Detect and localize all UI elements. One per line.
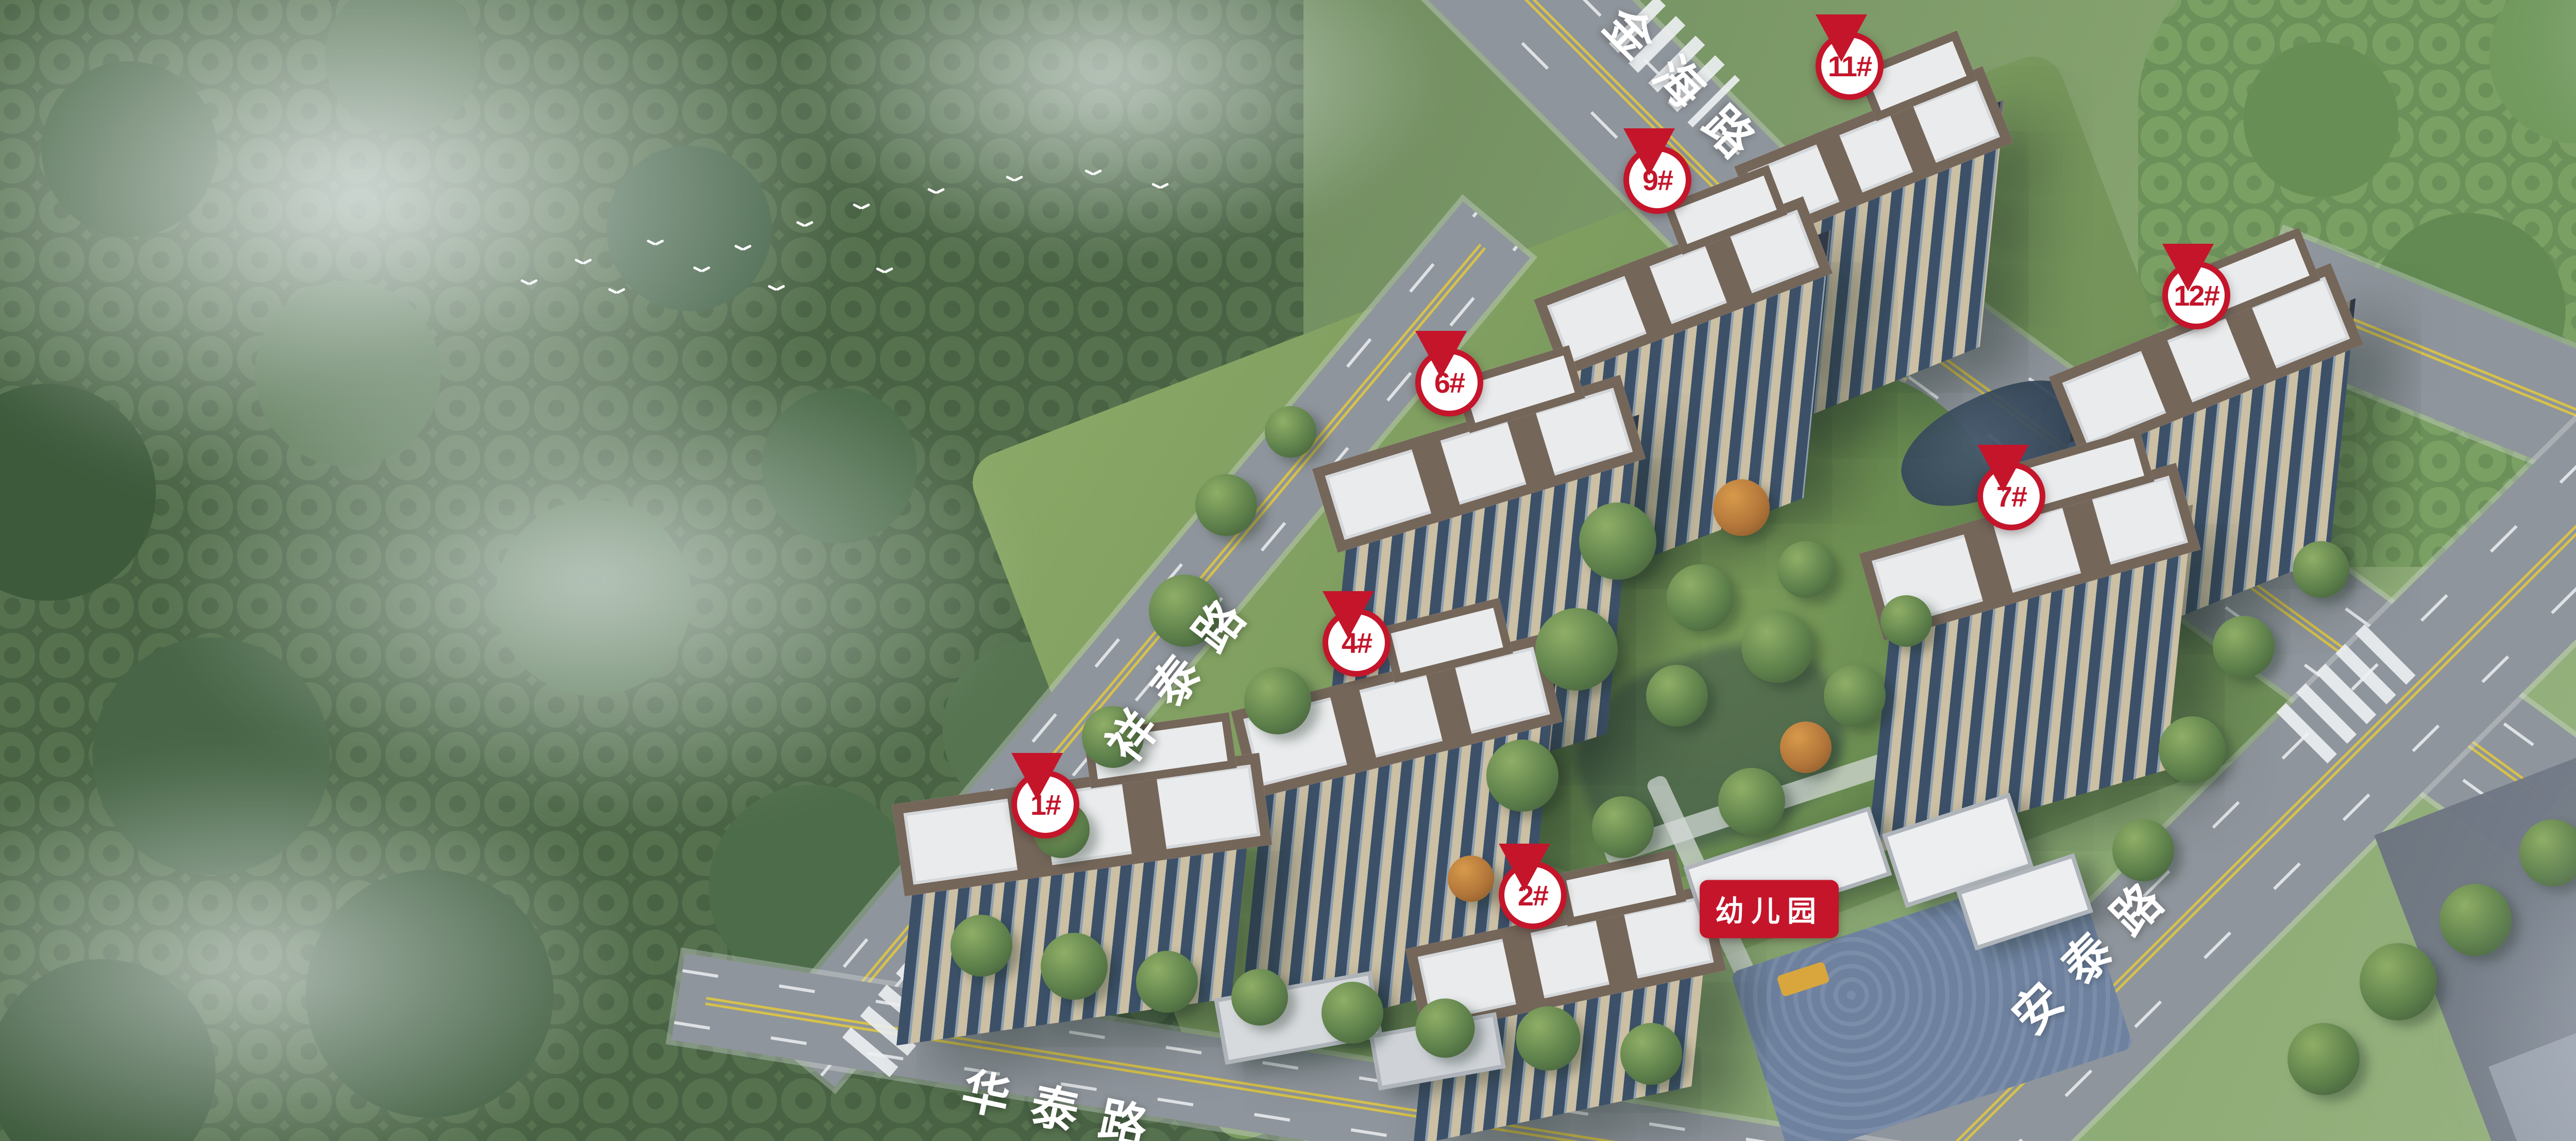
autumn-tree	[1713, 479, 1770, 536]
pin-tail-icon	[1623, 128, 1675, 176]
roof-divider	[1621, 257, 1675, 343]
tree	[1592, 796, 1654, 858]
tree	[2439, 884, 2512, 956]
tree	[1195, 474, 1257, 536]
bird-icon	[520, 281, 538, 288]
tree	[1667, 564, 1734, 631]
tree	[1620, 1023, 1682, 1085]
roof-divider	[1409, 431, 1463, 524]
tree	[1136, 951, 1198, 1013]
autumn-tree	[1780, 721, 1832, 773]
bird-icon	[693, 268, 710, 275]
kindergarten-badge[interactable]: 幼儿园	[1700, 880, 1839, 938]
bird-icon	[768, 287, 785, 294]
autumn-tree	[1448, 855, 1494, 902]
tree	[951, 915, 1012, 977]
tree	[1516, 1006, 1581, 1071]
bird-icon	[647, 241, 664, 248]
pin-tail-icon	[1415, 331, 1467, 378]
roof-divider	[1328, 680, 1379, 775]
roof-divider	[1961, 516, 2015, 611]
pin-tail-icon	[2162, 244, 2214, 291]
tree	[1777, 541, 1834, 598]
bird-icon	[853, 205, 870, 212]
pin-tail-icon	[1011, 753, 1063, 800]
tree	[1880, 595, 1932, 647]
tree	[1486, 740, 1558, 812]
tree	[1416, 999, 1475, 1058]
pin-tail-icon	[1977, 445, 2029, 492]
tree	[1321, 982, 1383, 1044]
bird-icon	[1006, 177, 1023, 184]
tree	[1244, 667, 1311, 734]
bird-icon	[574, 260, 592, 267]
pin-tail-icon	[1816, 14, 1867, 62]
tree	[1718, 768, 1785, 835]
tree	[1535, 608, 1618, 691]
bird-icon	[734, 246, 752, 254]
tree	[2287, 1023, 2360, 1095]
tree	[1741, 611, 1814, 683]
roof-divider	[1812, 126, 1866, 211]
tree	[1231, 969, 1288, 1026]
bird-icon	[1151, 184, 1169, 192]
tree	[1579, 502, 1656, 580]
roof-divider	[1500, 923, 1547, 1015]
bird-icon	[927, 190, 945, 197]
tree	[1265, 406, 1316, 458]
bird-icon	[608, 290, 625, 297]
tree	[2213, 616, 2275, 678]
aerial-rendering: 金海路 祥泰路 安泰路 华泰路 幼儿园 1# 2# 4# 6# 7# 9# 11…	[0, 0, 2576, 1141]
roof-divider	[2137, 331, 2196, 423]
tree	[1041, 933, 1108, 1000]
pin-tail-icon	[1499, 844, 1550, 891]
bird-icon	[876, 269, 893, 276]
tree	[1646, 665, 1708, 727]
tree	[1824, 665, 1886, 727]
tree	[2159, 716, 2226, 783]
tree	[2360, 943, 2437, 1020]
pin-tail-icon	[1323, 591, 1374, 639]
bird-icon	[1084, 171, 1102, 178]
tree	[2293, 541, 2349, 598]
bird-icon	[796, 223, 814, 230]
